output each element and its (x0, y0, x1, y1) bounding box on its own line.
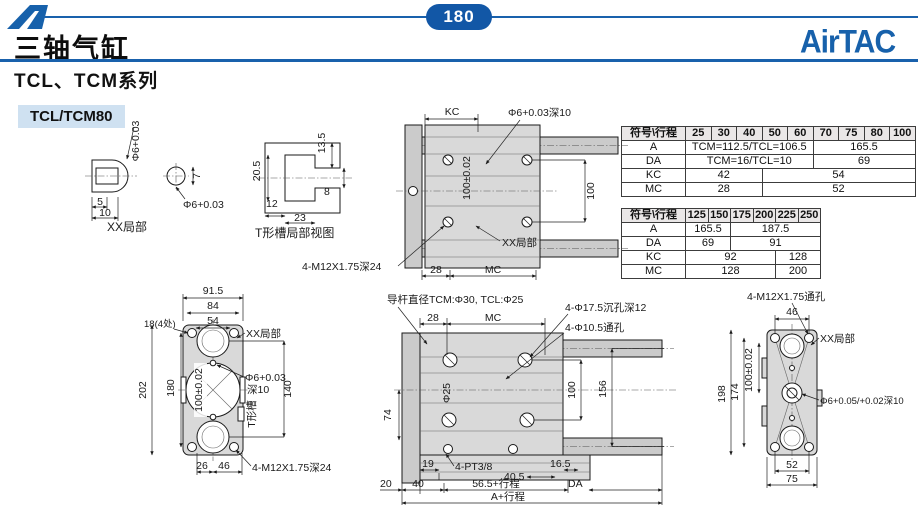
dim-label: 19 (422, 458, 434, 470)
hole-depth: 深10 (247, 384, 269, 396)
counterbore-note: 4-Φ17.5沉孔深12 (565, 301, 646, 314)
dim-label: 100±0.02 (193, 368, 205, 412)
cell: 69 (813, 155, 915, 169)
dim-label: 54 (207, 315, 219, 327)
cell: 52 (762, 183, 915, 197)
dim-label: Φ6+0.03 (183, 199, 224, 211)
t-slot-label: T形槽 (246, 400, 258, 428)
table-row: DA TCM=16/TCL=10 69 (622, 155, 916, 169)
dim-label: 28 (430, 264, 442, 276)
screw-note: 4-M12X1.75通孔 (747, 290, 826, 303)
dim-label: 74 (382, 409, 394, 421)
series-subtitle: TCL、TCM系列 (14, 66, 158, 93)
header-cell: 40 (737, 127, 763, 141)
hole-note: Φ6+0.03深10 (508, 107, 571, 119)
local-view-label: XX局部 (246, 327, 281, 340)
table-row: KC 42 54 (622, 169, 916, 183)
side-view-drawing: 导杆直径TCM:Φ30, TCL:Φ25 28 MC 4-Φ17.5沉孔深12 … (378, 283, 688, 509)
dim-label: 26 (196, 460, 208, 472)
dim-label: Φ25 (441, 383, 453, 403)
cell: 165.5 (686, 223, 731, 237)
front-view-drawing: 91.5 84 54 18(4处) 202 180 100±0.02 XX局部 … (138, 281, 338, 479)
dim-label: 100 (566, 381, 578, 399)
hole-count-note: 18(4处) (144, 318, 176, 330)
dim-label: MC (485, 312, 502, 324)
cell: 54 (762, 169, 915, 183)
table-row: MC 128 200 (622, 265, 821, 279)
dim-label: 140 (282, 380, 294, 398)
header-cell: 100 (890, 127, 916, 141)
title-rule (0, 59, 918, 62)
dim-label: DA (568, 478, 583, 490)
cell: 187.5 (731, 223, 821, 237)
dim-label: 202 (137, 381, 149, 399)
dim-label: 174 (729, 383, 741, 401)
cell: 69 (686, 237, 731, 251)
dim-label: 75 (786, 473, 798, 485)
local-view-label: XX局部 (820, 332, 855, 345)
dim-label: 7 (191, 173, 203, 179)
stroke-table-2: 符号\行程 125 150 175 200 225 250 A 165.5 18… (621, 208, 821, 279)
header-cell: 250 (798, 209, 821, 223)
dim-label: 198 (716, 385, 728, 403)
header-cell: 30 (711, 127, 737, 141)
rear-view-drawing: 4-M12X1.75通孔 46 XX局部 198 174 100±0.02 Φ6… (718, 288, 918, 493)
table-row: KC 92 128 (622, 251, 821, 265)
dim-label: 84 (207, 300, 219, 312)
port-note: 4-PT3/8 (455, 461, 493, 473)
header-cell: 50 (762, 127, 788, 141)
screw-note: 4-M12X1.75深24 (302, 261, 382, 273)
table-row: A TCM=112.5/TCL=106.5 165.5 (622, 141, 916, 155)
cell: TCM=16/TCL=10 (686, 155, 814, 169)
dim-label: 12 (266, 198, 278, 210)
dim-label: 56.5+行程 (472, 477, 520, 490)
header-cell: 25 (686, 127, 712, 141)
dim-label: A+行程 (491, 490, 526, 503)
table-row: MC 28 52 (622, 183, 916, 197)
cell: TCM=112.5/TCL=106.5 (686, 141, 814, 155)
dim-label: 40 (412, 478, 424, 490)
dim-label: 156 (597, 380, 609, 398)
table-row: A 165.5 187.5 (622, 223, 821, 237)
header-cell: 175 (731, 209, 754, 223)
view-caption: XX局部 (107, 219, 147, 234)
dim-label: Φ6+0.03 (130, 120, 142, 161)
cell: 128 (776, 251, 821, 265)
dim-label: 52 (786, 459, 798, 471)
dim-label: 28 (427, 312, 439, 324)
cell: 91 (731, 237, 821, 251)
table-header-row: 符号\行程 125 150 175 200 225 250 (622, 209, 821, 223)
dim-label: MC (485, 264, 502, 276)
cell: 165.5 (813, 141, 915, 155)
header-cell: 225 (776, 209, 799, 223)
header-cell: 70 (813, 127, 839, 141)
cell: 128 (686, 265, 776, 279)
dim-label: 180 (165, 379, 177, 397)
brand-logo: AirTAC (800, 25, 895, 62)
page-number-badge: 180 (426, 4, 492, 30)
dim-label: KC (445, 106, 460, 118)
dim-label: 16.5 (550, 458, 571, 470)
rod-note: 导杆直径TCM:Φ30, TCL:Φ25 (387, 293, 524, 306)
catalog-page: 180 三轴气缸 AirTAC TCL、TCM系列 TCL/TCM80 符号\行… (0, 0, 918, 511)
header-cell: 125 (686, 209, 709, 223)
hole-note: Φ6+0.03 (245, 372, 286, 384)
dim-label: 20 (380, 478, 392, 490)
dim-label: 10 (99, 207, 111, 219)
dim-label: 46 (786, 306, 798, 318)
screw-note: 4-M12X1.75深24 (252, 462, 332, 474)
cell: 200 (776, 265, 821, 279)
table-header-row: 符号\行程 25 30 40 50 60 70 75 80 100 (622, 127, 916, 141)
hole-note: Φ6+0.05/+0.02深10 (820, 396, 904, 407)
dim-label: 46 (218, 460, 230, 472)
header-cell: 60 (788, 127, 814, 141)
through-note: 4-Φ10.5通孔 (565, 321, 625, 334)
header-cell: 200 (753, 209, 776, 223)
cell: 42 (686, 169, 763, 183)
dim-label: 91.5 (203, 285, 224, 297)
stroke-table-1: 符号\行程 25 30 40 50 60 70 75 80 100 A TCM=… (621, 126, 916, 197)
dim-label: 20.5 (251, 161, 263, 182)
local-view-label: XX局部 (502, 236, 537, 249)
dim-label: 100±0.02 (743, 348, 755, 392)
dim-label: 100 (585, 182, 597, 200)
header-cell: 80 (864, 127, 890, 141)
detail-view-drawing: Φ6+0.03 5 10 7 Φ6+0.03 XX局部 (55, 113, 240, 238)
cell: 28 (686, 183, 763, 197)
header-cell: 75 (839, 127, 865, 141)
header-cell: 150 (708, 209, 731, 223)
cell: 92 (686, 251, 776, 265)
table-row: DA 69 91 (622, 237, 821, 251)
dim-label: 100±0.02 (461, 156, 473, 200)
top-view-drawing: KC Φ6+0.03深10 100±0.02 100 XX局部 28 MC 4-… (298, 92, 646, 292)
